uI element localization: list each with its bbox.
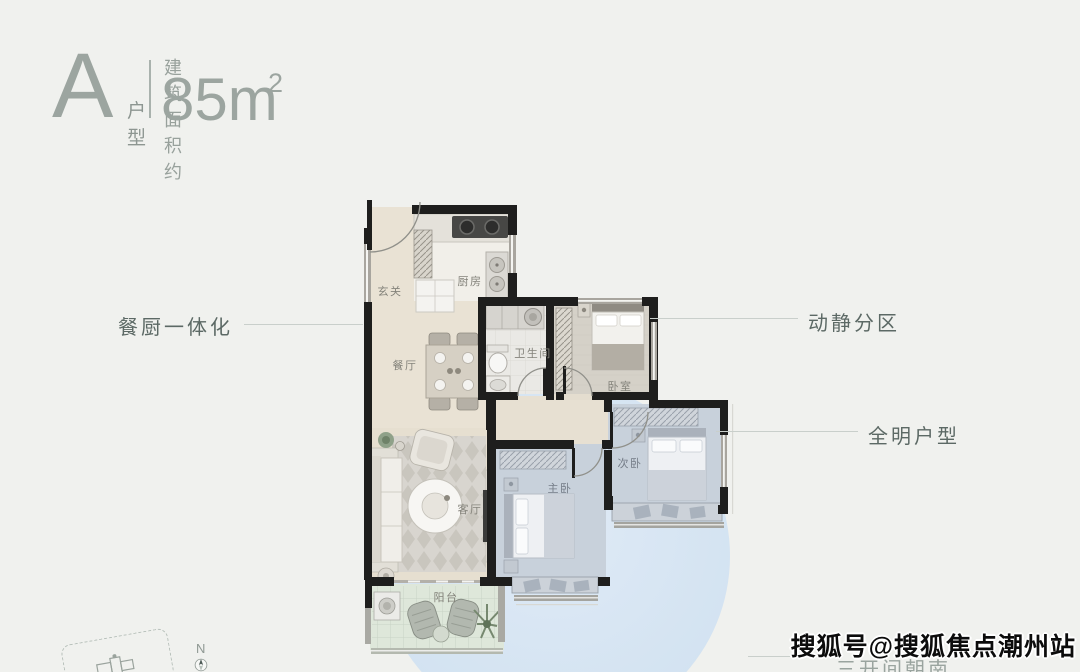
- bed: [592, 303, 644, 312]
- title-divider: [149, 60, 151, 118]
- toilet-icon: [489, 353, 507, 373]
- unit-type-suffix: 户型: [127, 96, 148, 150]
- dining-set: [426, 333, 482, 410]
- area-value: 85m: [161, 70, 278, 130]
- basin-icon: [490, 380, 506, 391]
- entry-door-leaf: [367, 200, 372, 250]
- room-label-balcony: 阳台: [434, 590, 459, 604]
- site-plan-sketch: [60, 627, 180, 672]
- callout-line-left: [244, 324, 363, 325]
- room-label-living: 客厅: [458, 502, 483, 516]
- floor-plan: 玄关 厨房 餐厅 卫生间 卧室 次卧 主卧 客厅 阳台: [358, 190, 742, 672]
- callout-zoning: 动静分区: [808, 307, 900, 336]
- room-label-bedroom: 卧室: [608, 379, 633, 393]
- room-label-second-bedroom: 次卧: [618, 456, 643, 470]
- callout-bright-layout: 全明户型: [868, 420, 960, 449]
- north-label: N: [196, 641, 205, 656]
- room-label-dining: 餐厅: [393, 358, 418, 372]
- bed: [504, 494, 513, 558]
- room-label-master-bedroom: 主卧: [548, 482, 573, 495]
- room-label-kitchen: 厨房: [458, 275, 483, 288]
- callout-dining-kitchen: 餐厨一体化: [118, 311, 233, 340]
- page: 玄关 厨房 餐厅 卫生间 卧室 次卧 主卧 客厅 阳台 A 户型 建筑面积约 8…: [0, 0, 1080, 672]
- watermark: 搜狐号@搜狐焦点潮州站: [791, 627, 1076, 663]
- room-label-entry: 玄关: [378, 284, 403, 298]
- callout-line-right-middle: [716, 431, 858, 432]
- unit-letter: A: [52, 40, 113, 132]
- room-label-bathroom: 卫生间: [514, 346, 552, 360]
- building-footprint-icon: [93, 650, 139, 672]
- dining-table: [426, 345, 482, 398]
- area-superscript: 2: [268, 68, 283, 99]
- north-arrow-icon: [186, 657, 216, 672]
- bed: [648, 428, 706, 437]
- callout-line-right-top: [650, 318, 798, 319]
